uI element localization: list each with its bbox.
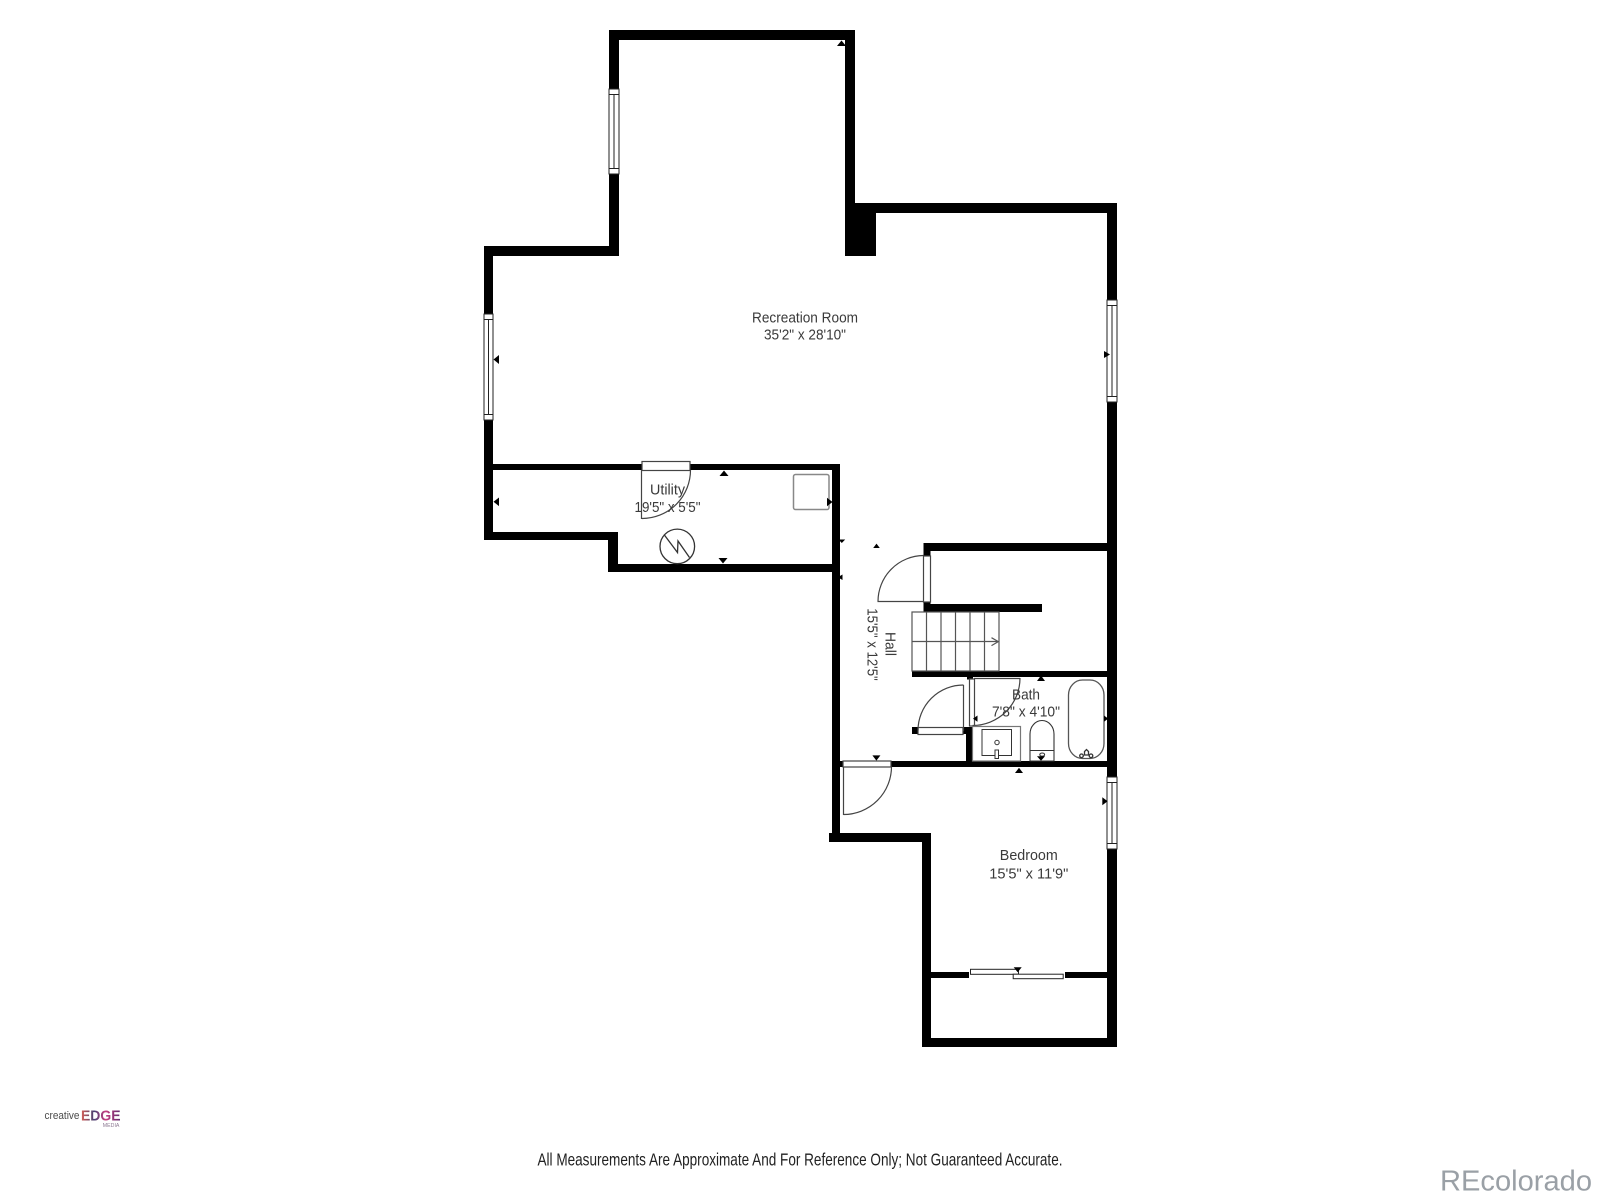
svg-text:15'5" x 12'5": 15'5" x 12'5" xyxy=(864,608,881,681)
svg-text:7'8" x 4'10": 7'8" x 4'10" xyxy=(992,704,1060,721)
svg-text:MEDIA: MEDIA xyxy=(103,1123,120,1129)
svg-text:Bedroom: Bedroom xyxy=(1000,847,1058,864)
svg-text:Utility: Utility xyxy=(650,482,685,499)
svg-text:REcolorado: REcolorado xyxy=(1440,1166,1592,1198)
svg-text:19'5" x 5'5": 19'5" x 5'5" xyxy=(635,499,701,516)
svg-text:Recreation Room: Recreation Room xyxy=(752,310,858,327)
svg-text:15'5" x 11'9": 15'5" x 11'9" xyxy=(989,866,1068,883)
svg-text:35'2" x 28'10": 35'2" x 28'10" xyxy=(764,327,846,344)
svg-text:creative: creative xyxy=(45,1110,80,1122)
svg-text:All Measurements Are Approxima: All Measurements Are Approximate And For… xyxy=(538,1150,1063,1170)
svg-text:Bath: Bath xyxy=(1012,687,1040,704)
svg-text:Hall: Hall xyxy=(882,632,899,656)
